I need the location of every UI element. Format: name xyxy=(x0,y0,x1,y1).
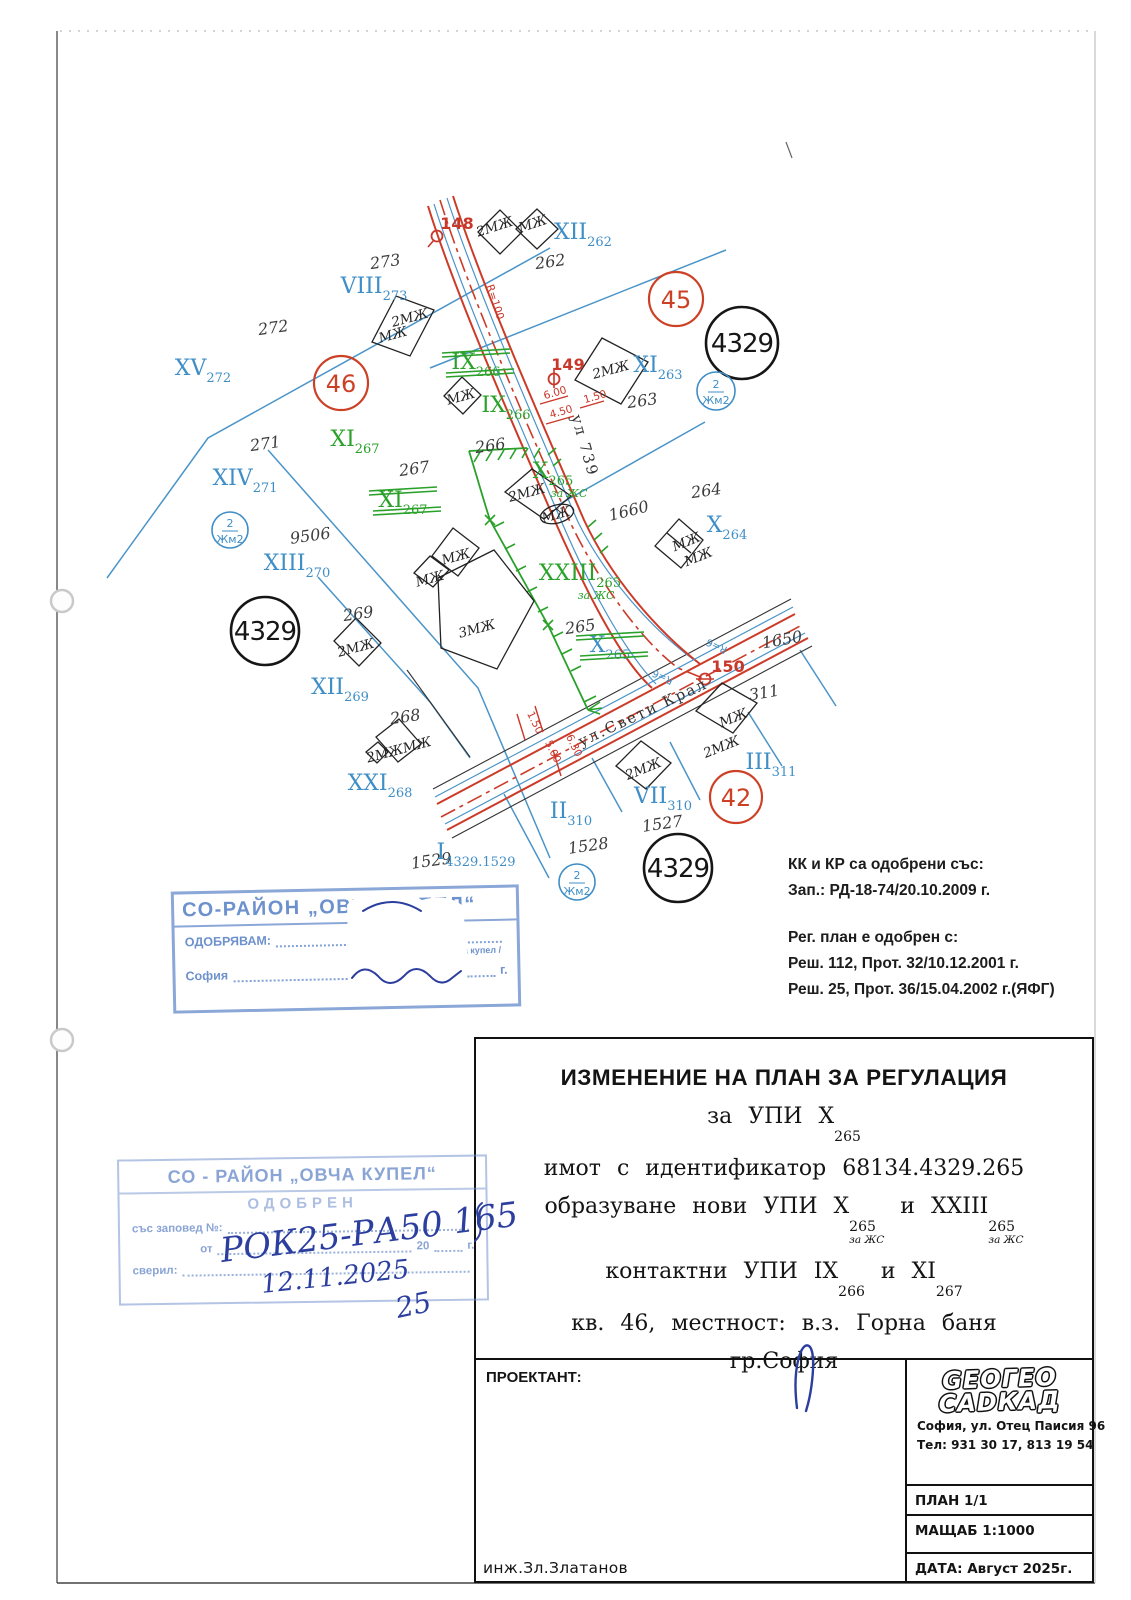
upi-label-XII-269: XII269 xyxy=(311,675,369,705)
designer-name: инж.Зл.Златанов xyxy=(483,1559,628,1577)
parcel-number-273: 273 xyxy=(368,250,402,273)
dimension-label: R=100 xyxy=(484,283,507,321)
upi-label-XII-262: XII262 xyxy=(554,220,612,250)
stamp-order-label: със заповед №: xyxy=(132,1222,223,1235)
building-label: 2МЖ xyxy=(622,755,665,785)
parcel-number-268: 268 xyxy=(388,705,422,728)
building-label: 2МЖ xyxy=(473,214,515,241)
upi-label-II-310: II310 xyxy=(550,799,592,829)
designer-cell: ПРОЕКТАНТ: инж.Зл.Златанов xyxy=(476,1358,905,1581)
stamp-city-label: София xyxy=(185,968,228,983)
title-line-3: образуване нови УПИ X265за ЖС и XXIII265… xyxy=(476,1194,1092,1246)
stamp-approve-label: ОДОБРЯВАМ: xyxy=(185,934,271,950)
upi-label-VIII-273: VIII273 xyxy=(340,274,408,304)
scanned-regulation-plan-page: 2622632642652662672682692712722739506165… xyxy=(0,0,1131,1600)
upi-label-XIII-270: XIII270 xyxy=(264,551,331,581)
decision-1: Реш. 112, Прот. 32/10.12.2001 г. xyxy=(788,951,1088,977)
zoning-code-top: 2 xyxy=(574,869,581,882)
street-739 xyxy=(428,196,705,688)
dimension-label: 1.50 xyxy=(524,710,545,736)
title-block-right-column: GEOГЕО CADКАД София, ул. Отец Паисия 96 … xyxy=(905,1358,1092,1581)
upi-label-VII-310: VII310 xyxy=(633,784,692,814)
cadastral-region-number: 4329 xyxy=(711,329,773,359)
parcel-number-1528: 1528 xyxy=(567,833,610,857)
building-label: 2МЖ xyxy=(506,480,548,506)
approval-stamp-top: СО-РАЙОН „ОВЧА КУПЕЛ“ ОДОБРЯВАМ: / кмет … xyxy=(171,884,521,1013)
parcel-number-1650: 1650 xyxy=(760,627,803,653)
upi-label-XI-267: XI267 xyxy=(330,427,379,457)
regplan-note: Рег. план е одобрен с: xyxy=(788,925,1088,951)
building-label: МЖ xyxy=(539,503,573,526)
upi-label-XV-272: XV272 xyxy=(175,356,231,386)
geocad-logo: GEOГЕО CADКАД xyxy=(907,1368,1092,1414)
building-label: МЖ xyxy=(376,323,410,346)
building-label: 3МЖ xyxy=(457,616,498,641)
stamp-year-prefix: 20 xyxy=(448,964,462,978)
cadastral-region-number: 4329 xyxy=(234,617,296,647)
upi-label-I-4329.1529: I4329.1529 xyxy=(436,840,515,870)
punch-hole xyxy=(51,590,73,612)
zoning-code-bottom: Жм2 xyxy=(216,533,243,546)
survey-point-tail xyxy=(428,240,434,247)
stamp-ot-label: от xyxy=(200,1243,213,1255)
strike-line xyxy=(576,636,644,640)
dotted-leader xyxy=(467,962,495,978)
dotted-leader xyxy=(434,1237,462,1252)
plan-cell: ПЛАН 1/1 xyxy=(907,1484,1092,1514)
stamp-year-suffix: г. xyxy=(500,963,508,977)
stamp-g: г. xyxy=(467,1240,474,1252)
upi-extra-label: за ЖС xyxy=(578,589,615,602)
upi-label-IX-266: IX266 xyxy=(481,393,530,423)
cadastral-region-number: 4329 xyxy=(647,854,709,884)
dotted-leader xyxy=(182,1258,469,1277)
title-lines: за УПИ X265имот с идентификатор 68134.43… xyxy=(476,1104,1092,1374)
building-label: МЖ xyxy=(716,705,751,731)
survey-point-number-150: 150 xyxy=(711,657,744,676)
stamp-header: СО - РАЙОН „ОВЧА КУПЕЛ“ xyxy=(119,1156,485,1194)
parcel-number-264: 264 xyxy=(689,479,723,502)
title-line-5: кв. 46, местност: в.з. Горна баня xyxy=(476,1311,1092,1336)
building-label: МЖ xyxy=(439,545,473,568)
upi-label-III-311: III311 xyxy=(746,750,797,780)
parcel-number-1527: 1527 xyxy=(641,811,685,836)
kvartal-number: 46 xyxy=(326,370,357,398)
drawing-title: ИЗМЕНЕНИЕ НА ПЛАН ЗА РЕГУЛАЦИЯ xyxy=(476,1065,1092,1091)
building-label: 2МЖ xyxy=(335,635,377,661)
kvartal-number: 45 xyxy=(661,286,692,314)
building-label: 2МЖ xyxy=(700,733,743,763)
stamp-year: 20 xyxy=(417,1240,430,1252)
parcel-number-262: 262 xyxy=(533,250,567,273)
dotted-leader xyxy=(233,963,443,982)
dotted-leader xyxy=(218,1237,412,1255)
company-cell: GEOГЕО CADКАД София, ул. Отец Паисия 96 … xyxy=(907,1360,1092,1484)
parcel-number-272: 272 xyxy=(256,316,290,339)
approval-stamp-bottom: СО - РАЙОН „ОВЧА КУПЕЛ“ ОДОБРЕН със запо… xyxy=(117,1154,489,1305)
upi-label-XI-263: XI263 xyxy=(633,353,682,383)
parcel-number-1660: 1660 xyxy=(607,497,651,525)
parcel-number-263: 263 xyxy=(625,389,659,412)
parcel-number-271: 271 xyxy=(248,432,282,455)
upi-label-X-264: X264 xyxy=(707,513,748,543)
stamp-sveril-label: сверил: xyxy=(132,1265,177,1278)
designer-label: ПРОЕКТАНТ: xyxy=(476,1360,905,1386)
zoning-code-bottom: Жм2 xyxy=(563,885,590,898)
survey-point-number-148: 148 xyxy=(440,214,473,233)
building-label: МЖ xyxy=(413,567,447,590)
upi-label-XXI-268: XXI268 xyxy=(348,771,413,801)
kk-kr-note: КК и КР са одобрени със: xyxy=(788,852,1088,878)
company-phone: Тел: 931 30 17, 813 19 54 xyxy=(907,1438,1092,1452)
parcel-number-267: 267 xyxy=(397,457,432,480)
title-line-2: имот с идентификатор 68134.4329.265 xyxy=(476,1156,1092,1181)
parcel-number-311: 311 xyxy=(747,681,780,705)
street-name: ул 739 xyxy=(567,412,602,478)
zoning-code-top: 2 xyxy=(227,517,234,530)
approval-notes: КК и КР са одобрени със: Зап.: РД-18-74/… xyxy=(788,852,1088,1003)
survey-point-number-149: 149 xyxy=(551,355,584,374)
pen-nick xyxy=(786,142,792,158)
title-block: ИЗМЕНЕНИЕ НА ПЛАН ЗА РЕГУЛАЦИЯ за УПИ X2… xyxy=(474,1037,1094,1583)
decision-2: Реш. 25, Прот. 36/15.04.2002 г.(ЯФГ) xyxy=(788,977,1088,1003)
date-cell: ДАТА: Август 2025г. xyxy=(907,1552,1092,1583)
zoning-code-bottom: Жм2 xyxy=(702,394,729,407)
upi-label-XIV-271: XIV271 xyxy=(212,466,277,496)
scale-cell: МАЩАБ 1:1000 xyxy=(907,1514,1092,1552)
parcel-number-9506: 9506 xyxy=(289,523,332,547)
upi-extra-label: за ЖС xyxy=(551,487,588,500)
title-line-1: за УПИ X265 xyxy=(476,1104,1092,1143)
zapoved-note: Зап.: РД-18-74/20.10.2009 г. xyxy=(788,878,1088,904)
building-label: МЖ xyxy=(444,385,478,408)
title-line-4: контактни УПИ IX266 и XI267 xyxy=(476,1259,1092,1298)
building-label: МЖ xyxy=(516,212,550,237)
punch-hole xyxy=(51,1029,73,1051)
parcel-number-269: 269 xyxy=(341,602,375,625)
kvartal-number: 42 xyxy=(721,784,752,812)
dimension-label: 5.00 xyxy=(542,739,563,765)
building-label: 2МЖ xyxy=(590,357,632,383)
company-address: София, ул. Отец Паисия 96 xyxy=(907,1419,1092,1433)
zoning-code-top: 2 xyxy=(713,378,720,391)
